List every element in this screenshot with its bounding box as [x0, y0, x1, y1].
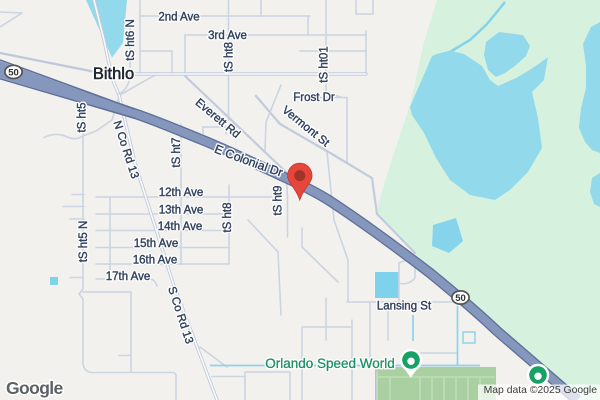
svg-text:50: 50 [455, 293, 466, 304]
svg-text:Bithlo: Bithlo [93, 65, 134, 83]
svg-text:50: 50 [8, 67, 19, 78]
svg-text:Orlando Speed World: Orlando Speed World [265, 356, 395, 371]
svg-text:Google: Google [6, 378, 64, 398]
svg-text:Map data ©2025 Google: Map data ©2025 Google [484, 385, 598, 396]
